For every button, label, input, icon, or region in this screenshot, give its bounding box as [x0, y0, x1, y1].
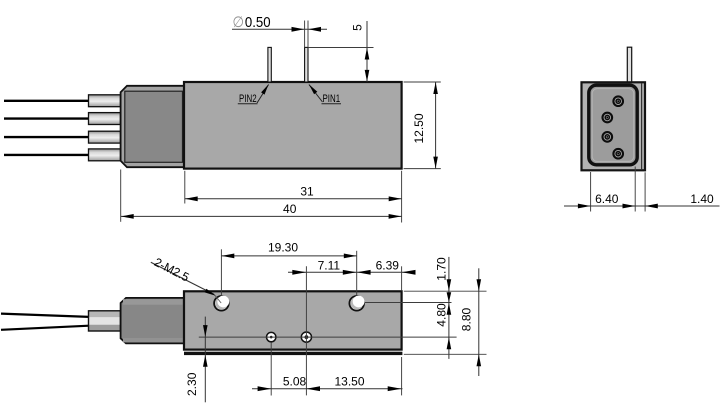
svg-text:13.50: 13.50 [334, 375, 364, 389]
svg-text:5.08: 5.08 [283, 375, 307, 389]
svg-text:8.80: 8.80 [460, 307, 474, 331]
svg-text:12.50: 12.50 [412, 113, 426, 143]
svg-text:4.80: 4.80 [435, 303, 449, 327]
svg-text:7.11: 7.11 [318, 259, 341, 273]
svg-text:19.30: 19.30 [268, 241, 298, 255]
svg-text:1.70: 1.70 [435, 257, 449, 281]
svg-text:6.39: 6.39 [376, 259, 400, 273]
svg-text:2-M2.5: 2-M2.5 [152, 255, 192, 285]
svg-text:31: 31 [300, 184, 314, 198]
svg-text:1.40: 1.40 [690, 192, 714, 206]
svg-text:∅0.50: ∅0.50 [233, 13, 271, 30]
svg-text:2.30: 2.30 [185, 372, 199, 396]
svg-text:40: 40 [283, 202, 297, 216]
svg-text:5: 5 [351, 24, 365, 31]
svg-text:6.40: 6.40 [595, 192, 619, 206]
